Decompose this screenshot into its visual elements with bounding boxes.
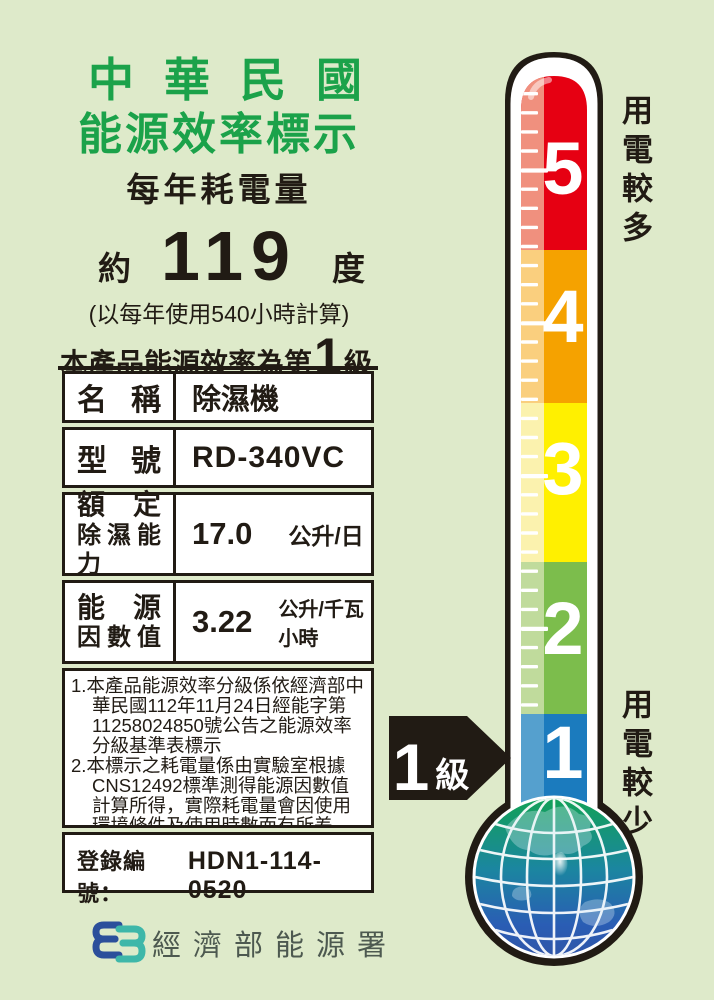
level-1-digit: 1 — [530, 716, 596, 790]
level-2-digit: 2 — [530, 592, 596, 666]
globe-highlight-droplet — [553, 852, 568, 876]
arrow-grade-value: 1 — [393, 735, 430, 800]
grade-arrow-text: 1 級 — [392, 718, 470, 800]
thermometer-graphic — [0, 0, 714, 1000]
level-4-digit: 4 — [530, 280, 596, 354]
arrow-grade-suffix: 級 — [435, 748, 469, 797]
level-5-digit: 5 — [530, 132, 596, 206]
level-3-digit: 3 — [530, 432, 596, 506]
energy-efficiency-label: 中華民國 能源效率標示 每年耗電量 約 119 度 (以每年使用540小時計算)… — [0, 0, 714, 1000]
